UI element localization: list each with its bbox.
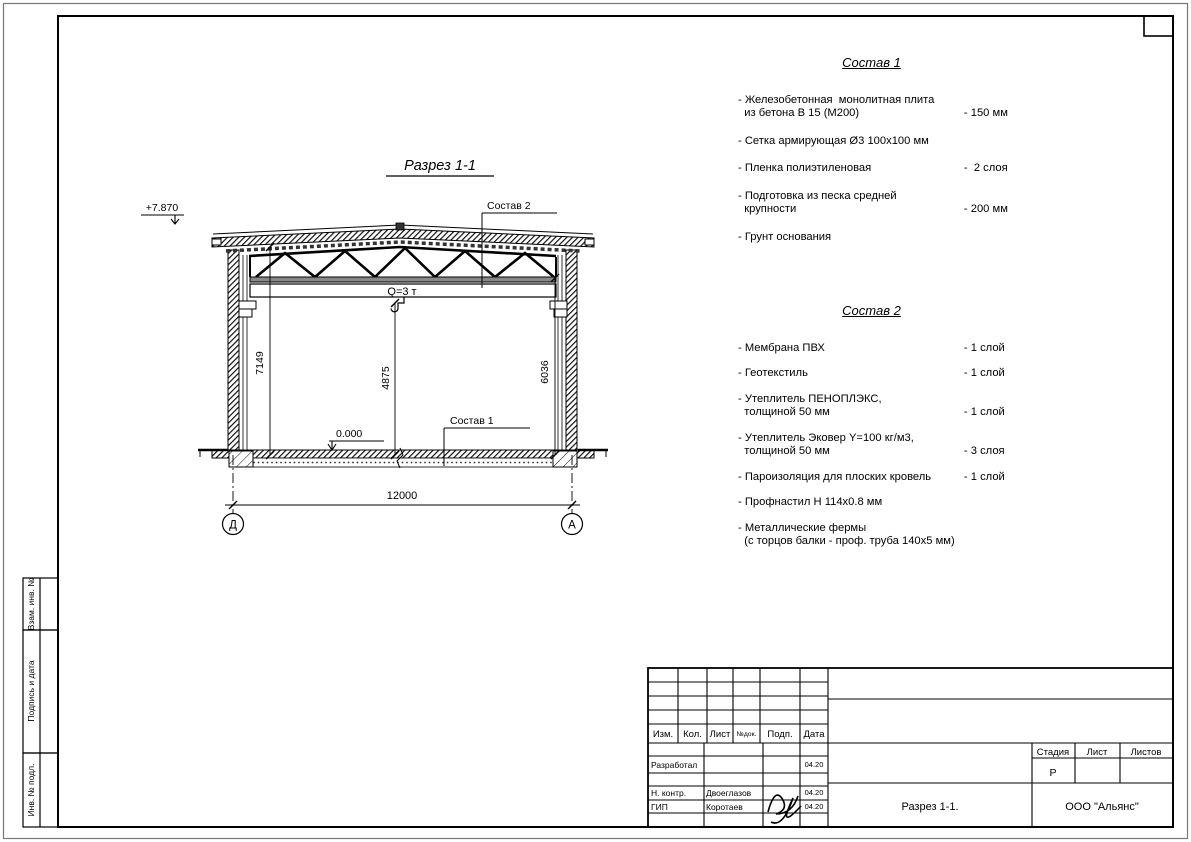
list-item: - Грунт основания	[738, 231, 1023, 245]
stamp-name-ncontrol: Двоеглазов	[706, 788, 752, 798]
side-column-labels: Взам. инв. № Подпись и дата Инв. № подл.	[26, 578, 36, 817]
stamp-role-ncontrol: Н. контр.	[651, 788, 686, 798]
sostav2-list: Состав 2 - Мембрана ПВХ - 1 слой - Геоте…	[720, 304, 1023, 561]
svg-text:6036: 6036	[539, 360, 551, 384]
list-item: - Подготовка из песка средней крупности …	[738, 190, 1023, 217]
stamp-header-row: Изм. Кол. Лист №док. Подп. Дата	[653, 729, 825, 740]
list-item: - Мембрана ПВХ - 1 слой	[738, 342, 1023, 356]
svg-text:7149: 7149	[254, 351, 266, 375]
list-item: - Утеплитель ПЕНОПЛЭКС, толщиной 50 мм -…	[738, 393, 1023, 420]
signature-icon	[768, 795, 801, 823]
sheet-number-box	[1144, 16, 1173, 36]
stamp-date-developed: 04.20	[805, 760, 824, 769]
sheet-label: Лист	[1087, 747, 1108, 758]
stamp-doc-title: Разрез 1-1.	[901, 801, 958, 813]
sostav1-title: Состав 1	[720, 56, 1023, 70]
side-label-inv: Инв. № подл.	[26, 764, 36, 817]
section-drawing: Разрез 1-1 +7.870	[141, 158, 608, 535]
sostav1-list: Состав 1 - Железобетонная монолитная пли…	[720, 56, 1023, 258]
list-item: - Профнастил Н 114х0.8 мм	[738, 496, 1023, 510]
sostav2-title: Состав 2	[720, 304, 1023, 318]
crane-hook-icon	[398, 297, 404, 308]
stamp-role-developed: Разработал	[651, 760, 697, 770]
stamp-name-gip: Коротаев	[706, 802, 743, 812]
crane-beam: Q=3 т	[250, 284, 556, 312]
side-label-podpis: Подпись и дата	[26, 660, 36, 721]
svg-text:0.000: 0.000	[336, 428, 362, 440]
list-item: - Железобетонная монолитная плита из бет…	[738, 94, 1023, 121]
stamp-organization: ООО "Альянс"	[1065, 801, 1139, 813]
stamp-stage-block: Стадия Лист Листов Р	[1037, 747, 1162, 779]
stamp-col-list: Лист	[710, 729, 731, 740]
ridge-cap	[396, 223, 404, 230]
roof-truss	[249, 247, 556, 282]
floor-slab	[198, 448, 608, 468]
axis-bubbles: Д А	[223, 514, 583, 535]
svg-text:Состав 2: Состав 2	[487, 200, 531, 212]
title-block: Изм. Кол. Лист №док. Подп. Дата Разработ…	[648, 668, 1173, 827]
stamp-col-data: Дата	[803, 729, 825, 740]
elevation-mark-top: +7.870	[141, 202, 184, 224]
stage-value: Р	[1049, 767, 1056, 779]
list-item: - Утеплитель Эковер Y=100 кг/м3, толщино…	[738, 432, 1023, 459]
stamp-col-podp: Подп.	[767, 729, 792, 740]
stamp-date-gip: 04.20	[805, 802, 824, 811]
list-item: - Пленка полиэтиленовая - 2 слоя	[738, 162, 1023, 176]
stamp-role-gip: ГИП	[651, 802, 668, 812]
stamp-date-ncontrol: 04.20	[805, 788, 824, 797]
elevation-mark-floor: 0.000	[328, 428, 384, 450]
sheets-label: Листов	[1131, 747, 1162, 758]
stamp-col-ndok: №док.	[737, 731, 757, 738]
crane-capacity-label: Q=3 т	[387, 286, 416, 298]
axis-label-right: А	[568, 520, 576, 532]
list-item: - Металлические фермы (с торцов балки - …	[738, 522, 1023, 549]
side-label-vzam: Взам. инв. №	[26, 578, 36, 631]
svg-text:4875: 4875	[380, 366, 392, 390]
dim-center-4875: 4875	[380, 299, 399, 459]
section-title: Разрез 1-1	[404, 158, 476, 174]
svg-text:+7.870: +7.870	[146, 202, 179, 214]
axis-label-left: Д	[229, 520, 237, 532]
list-item: - Сетка армирующая Ø3 100х100 мм	[738, 135, 1023, 149]
svg-text:Состав 1: Состав 1	[450, 415, 494, 427]
svg-text:12000: 12000	[387, 490, 418, 502]
stage-label: Стадия	[1037, 747, 1069, 758]
stamp-col-kol: Кол.	[683, 729, 702, 740]
drawing-sheet: Взам. инв. № Подпись и дата Инв. № подл.…	[0, 0, 1191, 842]
stamp-col-izm: Изм.	[653, 729, 673, 740]
list-item: - Геотекстиль - 1 слой	[738, 367, 1023, 381]
list-item: - Пароизоляция для плоских кровель - 1 с…	[738, 471, 1023, 485]
